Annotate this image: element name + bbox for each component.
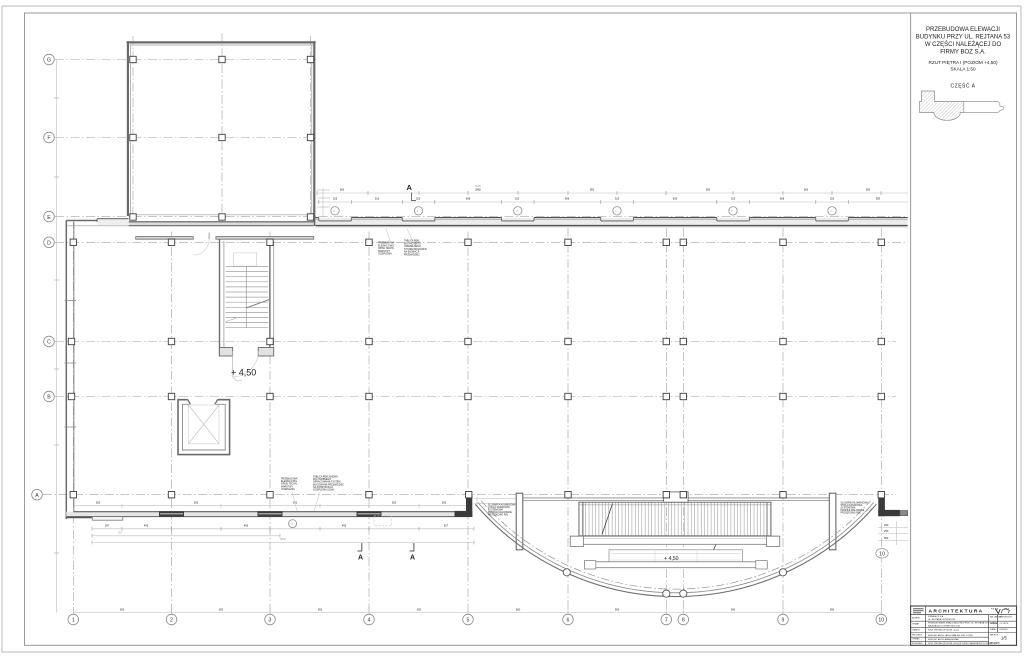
svg-text:668: 668: [466, 197, 471, 201]
svg-text:9: 9: [782, 618, 785, 624]
svg-text:10: 10: [879, 552, 885, 558]
svg-text:SKALA: SKALA: [990, 622, 998, 625]
svg-text:325: 325: [615, 197, 620, 201]
svg-text:WARSTWY: WARSTWY: [378, 250, 390, 253]
svg-text:MOCOWANIA PRZEWIDZIEC: MOCOWANIA PRZEWIDZIEC: [313, 483, 344, 486]
svg-text:582: 582: [866, 188, 871, 192]
svg-text:OPRAC.: OPRAC.: [912, 638, 921, 641]
svg-text:RZUT PIETRA I (POZIOM +4,50): RZUT PIETRA I (POZIOM +4,50): [928, 629, 959, 632]
svg-text:250: 250: [884, 529, 889, 533]
svg-text:PRZEBUDOWA ELEWACJI: PRZEBUDOWA ELEWACJI: [926, 27, 1000, 33]
svg-text:590: 590: [731, 608, 736, 612]
svg-text:OPRACOWANIA SYSTEM: OPRACOWANIA SYSTEM: [313, 481, 340, 484]
svg-text:3: 3: [269, 618, 272, 624]
svg-text:MGR INZ. ARCH. ANNA NOWAK: MGR INZ. ARCH. ANNA NOWAK: [928, 638, 959, 641]
svg-text:592: 592: [219, 608, 224, 612]
svg-text:CZĘŚĆ A: CZĘŚĆ A: [951, 82, 976, 90]
svg-text:OBIEKT: OBIEKT: [912, 629, 921, 631]
svg-text:510: 510: [375, 197, 380, 201]
svg-text:05/2009: 05/2009: [1000, 629, 1009, 631]
svg-text:1/5: 1/5: [1001, 636, 1007, 641]
svg-text:2882: 2882: [475, 188, 481, 192]
svg-text:ELEWACJI WG: ELEWACJI WG: [281, 480, 297, 483]
svg-text:NA KONSTRUKCJI: NA KONSTRUKCJI: [313, 486, 333, 489]
svg-text:INWEST.: INWEST.: [912, 617, 921, 619]
svg-text:592: 592: [392, 501, 397, 505]
svg-text:297: 297: [105, 524, 110, 528]
svg-text:325: 325: [333, 197, 338, 201]
svg-text:593: 593: [876, 197, 881, 201]
svg-text:835: 835: [673, 197, 678, 201]
svg-text:WG PROJEKTU: WG PROJEKTU: [404, 243, 421, 245]
svg-text:325: 325: [731, 197, 736, 201]
svg-text:ARCH: ARCH: [1004, 608, 1010, 611]
svg-text:PROSZKOWO RAL: PROSZKOWO RAL: [488, 514, 509, 517]
svg-text:5: 5: [467, 618, 470, 624]
svg-text:NA ELEWACJI: NA ELEWACJI: [404, 251, 419, 254]
svg-text:495: 495: [342, 524, 347, 528]
svg-text:PRZEBUDOWA ELEWACJI BUDYNKU PR: PRZEBUDOWA ELEWACJI BUDYNKU PRZY UL. REJ…: [928, 622, 998, 625]
svg-text:CZ. RYS.: CZ. RYS.: [1000, 623, 1010, 625]
svg-text:FIRMY BOZ S.A.: FIRMY BOZ S.A.: [940, 50, 986, 56]
svg-text:RZUT PIETRA I (POZIOM +4,50) W: RZUT PIETRA I (POZIOM +4,50) W CZESCI NA…: [928, 642, 998, 645]
svg-text:PROSZKOWO RAL: PROSZKOWO RAL: [841, 512, 862, 515]
svg-text:582: 582: [706, 188, 711, 192]
svg-text:A: A: [410, 555, 415, 562]
svg-text:TEMAT: TEMAT: [912, 623, 920, 626]
svg-text:MGR INZ. ARCH. JAN KOWALSKI U: MGR INZ. ARCH. JAN KOWALSKI UPR. 125/80: [928, 634, 973, 637]
svg-text:TABLICA REKL.: TABLICA REKL.: [404, 240, 421, 243]
svg-text:495: 495: [244, 524, 249, 528]
svg-text:+ 4,50: + 4,50: [664, 556, 679, 562]
svg-text:582: 582: [804, 188, 809, 192]
svg-text:ARCHITEKTURA: ARCHITEKTURA: [929, 609, 984, 615]
svg-text:B: B: [47, 395, 51, 401]
svg-text:590: 590: [615, 608, 620, 612]
svg-text:F: F: [47, 136, 50, 142]
svg-text:A: A: [358, 555, 363, 562]
svg-text:590: 590: [830, 608, 835, 612]
svg-text:527: 527: [444, 524, 449, 528]
svg-text:325: 325: [515, 197, 520, 201]
svg-text:297: 297: [118, 531, 123, 535]
svg-text:UL. REJTANA 53 RZESZOW: UL. REJTANA 53 RZESZOW: [928, 618, 955, 621]
svg-text:NALEZACEJ DO FIRMY BOZ S.A.: NALEZACEJ DO FIRMY BOZ S.A.: [928, 624, 960, 627]
svg-text:A: A: [35, 493, 39, 499]
svg-text:E: E: [47, 215, 51, 221]
svg-text:582: 582: [590, 188, 595, 192]
svg-text:ODDZIELNEGO: ODDZIELNEGO: [404, 246, 421, 248]
svg-text:600: 600: [516, 608, 521, 612]
svg-text:FIRMA BOZ S.A.: FIRMA BOZ S.A.: [928, 615, 944, 618]
svg-text:TABLICA REKLAMOWA: TABLICA REKLAMOWA: [313, 476, 338, 479]
svg-text:4: 4: [368, 618, 371, 624]
svg-text:10: 10: [878, 618, 884, 624]
svg-text:325: 325: [416, 197, 421, 201]
svg-text:582: 582: [340, 188, 345, 192]
svg-text:7: 7: [665, 618, 668, 624]
svg-text:PRZEBUDOWA: PRZEBUDOWA: [378, 242, 395, 245]
svg-text:PROJEKT.: PROJEKT.: [912, 634, 923, 636]
svg-text:SYSTEM MOCOWAN: SYSTEM MOCOWAN: [404, 248, 427, 251]
svg-text:C: C: [47, 340, 51, 346]
svg-text:NR RYS.: NR RYS.: [990, 635, 999, 637]
svg-text:OCIEPLENIA SCIAN: OCIEPLENIA SCIAN: [313, 489, 335, 492]
svg-text:592: 592: [120, 608, 125, 612]
svg-text:G: G: [47, 58, 51, 64]
svg-text:NR TOMU: NR TOMU: [990, 643, 1001, 645]
svg-text:592: 592: [417, 608, 422, 612]
svg-text:BUDYNKU PRZY UL. REJTANA 53: BUDYNKU PRZY UL. REJTANA 53: [916, 35, 1011, 41]
svg-text:592: 592: [318, 608, 323, 612]
svg-text:PRZEWIDZIEC: PRZEWIDZIEC: [404, 255, 420, 257]
svg-text:PRZEBUDOWA: PRZEBUDOWA: [281, 478, 298, 481]
svg-text:592: 592: [442, 501, 447, 505]
svg-text:OCIEPLENIA: OCIEPLENIA: [281, 488, 295, 491]
svg-text:325: 325: [830, 197, 835, 201]
svg-text:OCIEPLENIA: OCIEPLENIA: [378, 253, 392, 256]
svg-text:SKALA 1:50: SKALA 1:50: [950, 67, 976, 72]
svg-text:8: 8: [682, 618, 685, 624]
svg-text:RZUT PIĘTRA I (POZIOM +4,50): RZUT PIĘTRA I (POZIOM +4,50): [928, 60, 998, 65]
svg-text:+ 4,50: + 4,50: [231, 368, 256, 378]
svg-text:592: 592: [96, 501, 101, 505]
svg-text:WARSTWY: WARSTWY: [281, 485, 293, 488]
svg-text:250: 250: [884, 523, 889, 527]
svg-text:592: 592: [194, 501, 199, 505]
svg-text:3820: 3820: [280, 537, 286, 541]
svg-text:DATA: DATA: [990, 628, 996, 631]
svg-text:D: D: [47, 241, 51, 247]
svg-text:OPISU TECHN.: OPISU TECHN.: [378, 248, 395, 250]
svg-text:ELEWACJI WG: ELEWACJI WG: [378, 244, 394, 247]
svg-text:452/08/2009: 452/08/2009: [1000, 617, 1013, 619]
svg-text:2: 2: [170, 618, 173, 624]
svg-text:A: A: [407, 183, 413, 192]
svg-text:1: 1: [72, 618, 75, 624]
svg-text:5905: 5905: [475, 184, 481, 188]
svg-text:6: 6: [567, 618, 570, 624]
svg-text:W CZĘŚCI NALEŻĄCEJ DO: W CZĘŚCI NALEŻĄCEJ DO: [925, 40, 1002, 48]
svg-text:RYSUNEK: RYSUNEK: [912, 643, 923, 645]
svg-text:495: 495: [144, 524, 149, 528]
svg-text:668: 668: [565, 197, 570, 201]
svg-text:P.W. ATA: P.W. ATA: [991, 608, 999, 611]
svg-text:863: 863: [884, 536, 889, 540]
svg-text:668: 668: [780, 197, 785, 201]
